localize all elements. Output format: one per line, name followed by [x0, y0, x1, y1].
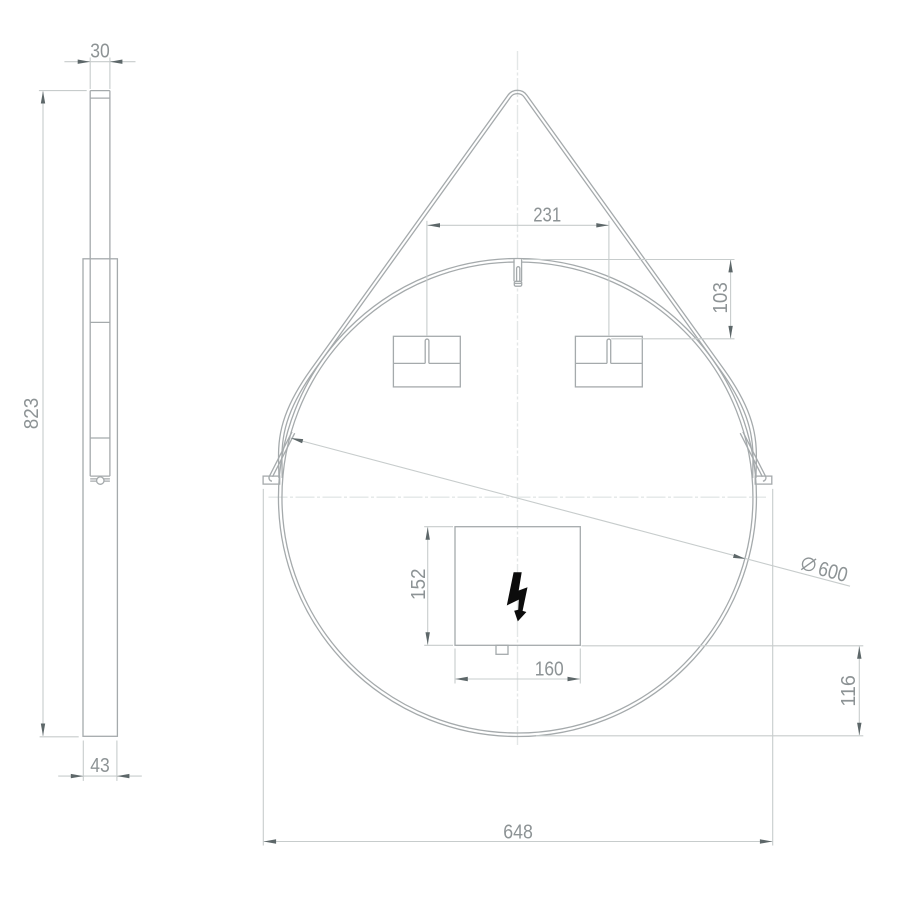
svg-text:152: 152: [407, 568, 430, 600]
svg-text:30: 30: [90, 40, 110, 63]
svg-text:116: 116: [837, 675, 860, 707]
svg-text:823: 823: [20, 398, 43, 430]
svg-text:231: 231: [533, 203, 561, 226]
svg-text:103: 103: [709, 282, 732, 314]
svg-text:160: 160: [535, 657, 564, 680]
svg-text:648: 648: [503, 820, 533, 843]
svg-text:43: 43: [90, 754, 110, 777]
